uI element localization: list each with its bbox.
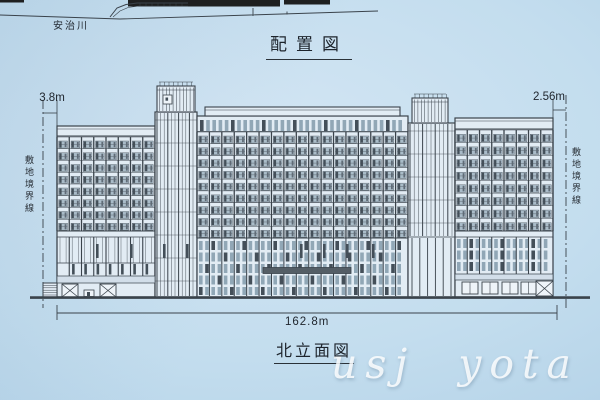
dimension-right-offset: 2.56m	[519, 91, 565, 103]
boundary-label-left: 敷地境界線	[23, 155, 36, 215]
site-plan-title: 配置図	[266, 30, 352, 60]
watermark: usj yota	[331, 340, 579, 388]
dimension-total-width: 162.8m	[285, 316, 329, 328]
boundary-label-right: 敷地境界線	[570, 147, 583, 207]
architectural-drawing-photo: 安治川 配置図 3.8m 2.56m 敷地境界線 敷地境界線 162.8m 北立…	[0, 0, 600, 400]
river-label: 安治川	[53, 17, 89, 32]
building-elevation	[43, 82, 553, 298]
dimension-left-offset: 3.8m	[30, 92, 74, 104]
